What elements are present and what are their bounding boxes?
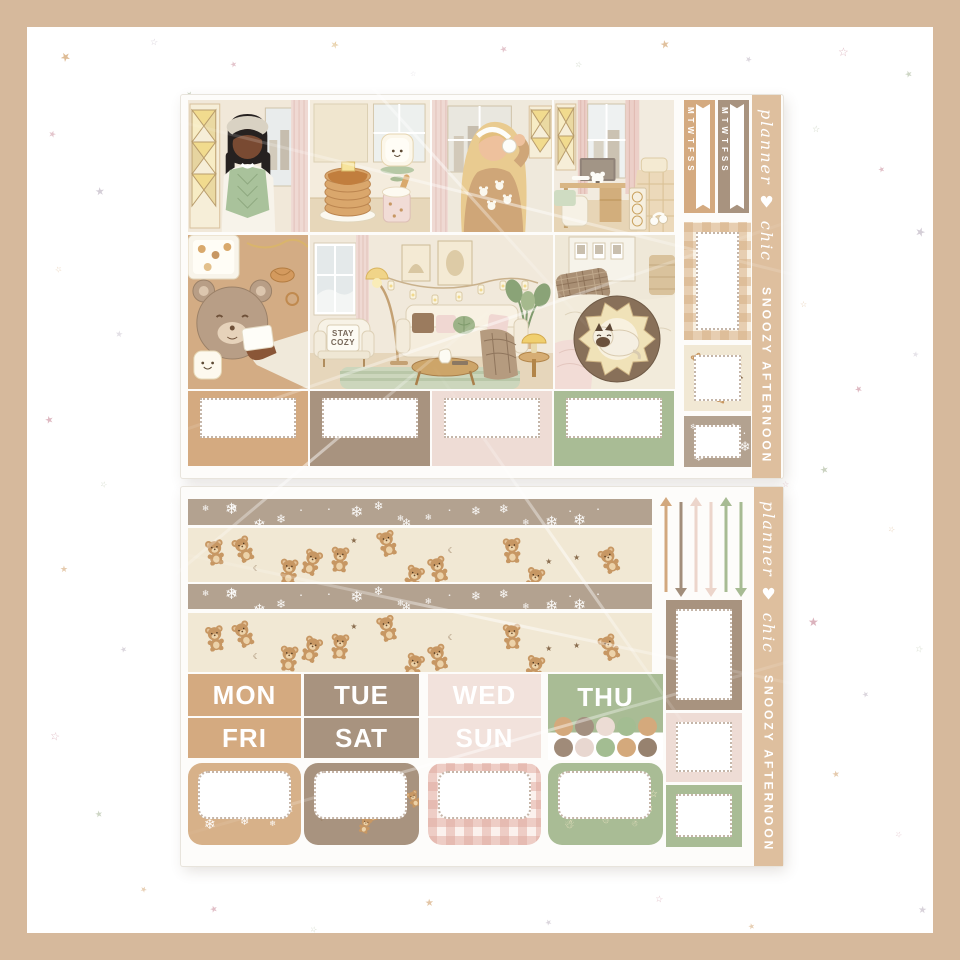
- star-confetti: ☆: [53, 264, 64, 275]
- star-confetti: ☆: [654, 894, 664, 905]
- dot-sticker-grid: [548, 714, 663, 760]
- write-in-area: [676, 609, 732, 700]
- arrow-sticker-down: [705, 497, 717, 597]
- kit-name-label: SNOOZY AFTERNOON: [762, 675, 776, 852]
- star-confetti: ★: [57, 48, 73, 66]
- star-confetti: ☆: [782, 480, 789, 489]
- snowflake-pattern-glyph: ❄: [401, 600, 411, 609]
- star-confetti: ★: [44, 414, 56, 427]
- star-confetti: ★: [138, 884, 148, 895]
- star-confetti: ★: [94, 185, 105, 199]
- arrow-sticker-up: [690, 497, 702, 597]
- star-confetti: ★: [114, 329, 123, 340]
- teddy-bear-pattern: [275, 642, 303, 672]
- write-in-area: [322, 398, 418, 438]
- teddy-bear-pattern: [398, 647, 431, 672]
- snowflake-pattern-glyph: ❄: [425, 596, 432, 606]
- tiny-star-moon-glyph: ★: [350, 536, 357, 545]
- star-confetti: ★: [911, 349, 919, 359]
- brand-script-logo: planner ♥ chic: [757, 109, 776, 262]
- star-confetti: ★: [743, 54, 753, 65]
- star-confetti: ★: [853, 384, 865, 397]
- quarter-label-sticker: [310, 391, 430, 466]
- snowflake-pattern-glyph: ❄: [573, 511, 586, 525]
- star-confetti: ★: [118, 644, 128, 655]
- teddy-bear-pattern: [225, 530, 260, 566]
- full-box-sticker: [666, 713, 742, 782]
- washi-strip-sticker: ❄❄❄•❄❄❄•❄❄❄•❄❄❄•❄❄❄•: [188, 584, 652, 609]
- teddy-bear-pattern: [275, 554, 303, 582]
- teddy-bear-pattern: [295, 544, 329, 579]
- stay-cozy-pillow-text-line1: STAY: [332, 329, 354, 338]
- snow-label-sticker: ❄❄❄•❄❄❄•❄❄❄•: [188, 763, 301, 845]
- snowflake-pattern-glyph: •: [743, 432, 746, 437]
- flag-ribbon: [730, 104, 744, 209]
- star-confetti: ★: [328, 39, 340, 52]
- snowflake-pattern-glyph: ❄: [471, 589, 481, 603]
- arrow-sticker-up: [660, 497, 672, 597]
- dot-sticker: [575, 717, 594, 736]
- sheet1-brand-strip: planner ♥ chic SNOOZY AFTERNOON: [752, 95, 781, 478]
- tiny-star-moon-glyph: ☾: [253, 652, 260, 661]
- snowflake-pattern-glyph: •: [327, 507, 330, 513]
- weekday-letters: MTWTFSS: [720, 107, 729, 175]
- illustration-bedroom-desk: [554, 100, 674, 232]
- star-confetti: ★: [209, 904, 220, 916]
- snowflake-pattern-glyph: ❄: [225, 585, 238, 603]
- write-in-area: [198, 771, 291, 819]
- sticker-sheet-2: ❄❄❄•❄❄❄•❄❄❄•❄❄❄•❄❄❄•★☾★☾★❄❄❄•❄❄❄•❄❄❄•❄❄❄…: [181, 487, 783, 866]
- snowflake-pattern-glyph: ❄: [276, 597, 286, 609]
- quarter-label-sticker: [554, 391, 674, 466]
- quarter-label-sticker: [188, 391, 308, 466]
- brand-script-logo: planner ♥ chic: [759, 501, 778, 654]
- star-confetti: ☆: [838, 45, 849, 60]
- star-confetti: ☆: [149, 38, 158, 49]
- teddy-bear-pattern: [200, 535, 230, 567]
- teddy-bear-pattern: [519, 651, 550, 672]
- snowflake-pattern-glyph: ❄: [276, 512, 286, 525]
- day-header-wed: WED: [428, 674, 541, 716]
- dot-sticker: [554, 738, 573, 757]
- week-flag-sticker: MTWTFSS: [684, 100, 715, 213]
- snowflake-pattern-glyph: ❄: [204, 817, 216, 833]
- teddy-bear-pattern: [421, 639, 454, 672]
- teddy-bear-pattern: [326, 543, 354, 573]
- quarter-label-sticker: [432, 391, 552, 466]
- dot-sticker: [596, 738, 615, 757]
- day-header-fri: FRI: [188, 718, 301, 758]
- dot-sticker: [554, 717, 573, 736]
- write-in-area: [444, 398, 540, 438]
- snowflake-pattern-glyph: •: [568, 509, 571, 515]
- teddy-bear-pattern: [370, 613, 403, 644]
- tiny-star-moon-glyph: ☾: [448, 633, 455, 642]
- star-confetti: ★: [831, 769, 841, 780]
- snowflake-pattern-glyph: ❄: [545, 513, 558, 525]
- write-in-area: [314, 771, 407, 819]
- teddy-bear-pattern: [200, 621, 230, 653]
- write-in-area: [558, 771, 651, 819]
- dot-sticker: [575, 738, 594, 757]
- snowflake-pattern-glyph: ❄: [397, 513, 404, 523]
- washi-strip-sticker: ★☾★☾★: [188, 528, 652, 582]
- snowflake-pattern-glyph: •: [327, 592, 330, 598]
- star-confetti: ☆: [812, 125, 821, 136]
- star-confetti: ★: [425, 898, 435, 910]
- tiny-star-moon-glyph: ★: [545, 644, 552, 653]
- star-confetti: ☆: [914, 644, 924, 656]
- teddy-bear-pattern: [498, 620, 525, 649]
- star-confetti: ☆: [309, 924, 319, 935]
- snowflake-pattern-glyph: ❄: [253, 516, 266, 525]
- dot-sticker: [617, 717, 636, 736]
- star-confetti: ★: [808, 615, 819, 629]
- write-in-area: [694, 425, 741, 458]
- snowflake-pattern-glyph: ❄: [230, 587, 237, 597]
- snowflake-pattern-glyph: ❄: [350, 503, 363, 521]
- snow-box-sticker: ❄❄❄•❄❄❄•❄: [684, 416, 751, 467]
- star-confetti: ★: [913, 224, 928, 241]
- bears-box-sticker: ★☾: [684, 345, 751, 411]
- teddy-bear-pattern: [295, 631, 329, 666]
- snowflake-pattern-glyph: ❄: [425, 512, 432, 522]
- washi-strip-sticker: ★☾★☾★: [188, 613, 652, 672]
- gingham-box-sticker: [684, 222, 751, 340]
- illustration-bear-cookie-flatlay: [188, 235, 308, 389]
- illustration-girl-bear-sweater: [432, 100, 552, 232]
- day-header-mon: MON: [188, 674, 301, 716]
- teddy-bear-pattern: [225, 615, 260, 651]
- snowflake-pattern-glyph: ❄: [401, 516, 411, 525]
- illustration-cozy-living-room: STAY COZY: [310, 235, 553, 389]
- snowflake-pattern-glyph: ❄: [499, 587, 509, 601]
- star-confetti: ☆: [49, 729, 62, 744]
- teddy-bear-pattern: [592, 541, 627, 577]
- illustration-girl-green-vest: [188, 100, 308, 232]
- star-confetti: ★: [94, 809, 104, 820]
- illustration-pancakes-and-toast: [310, 100, 430, 232]
- dot-sticker: [596, 717, 615, 736]
- star-confetti: ☆: [99, 479, 109, 490]
- star-confetti: ★: [904, 69, 915, 81]
- tiny-star-moon-glyph: ★: [545, 557, 552, 566]
- write-in-area: [676, 794, 732, 837]
- dot-sticker: [617, 738, 636, 757]
- snowflake-pattern-glyph: •: [596, 507, 599, 513]
- teddy-bear-pattern: [326, 630, 354, 660]
- day-header-sat: SAT: [304, 718, 419, 758]
- teddy-bear-pattern: [519, 562, 550, 582]
- snowflake-pattern-glyph: ❄: [499, 502, 509, 516]
- snowflake-pattern-glyph: ❄: [545, 597, 558, 609]
- star-confetti: ★: [747, 921, 756, 931]
- snowflake-pattern-glyph: •: [299, 593, 302, 599]
- star-confetti: ★: [543, 917, 553, 928]
- kit-name-label: SNOOZY AFTERNOON: [760, 287, 774, 464]
- snowflake-pattern-glyph: ❄: [269, 819, 276, 828]
- star-confetti: ★: [229, 59, 238, 70]
- full-box-sticker: [666, 600, 742, 710]
- day-header-tue: TUE: [304, 674, 419, 716]
- snowflake-pattern-glyph: ❄: [202, 503, 209, 513]
- teddy-bear-pattern: [370, 528, 403, 559]
- snowflake-pattern-glyph: •: [448, 593, 451, 599]
- illustration-cat-in-bear-bed: [555, 235, 675, 389]
- star-confetti: ☆: [800, 300, 808, 310]
- star-confetti: ☆: [893, 829, 904, 840]
- flag-ribbon: [696, 104, 710, 209]
- star-confetti: ★: [60, 565, 68, 575]
- week-flag-sticker: MTWTFSS: [718, 100, 749, 213]
- snowflake-pattern-glyph: •: [299, 508, 302, 514]
- tiny-star-moon-glyph: ★: [573, 553, 580, 562]
- star-confetti: ☆: [574, 59, 583, 69]
- write-in-area: [200, 398, 296, 438]
- gingham-label-sticker: [428, 763, 541, 845]
- snowflake-pattern-glyph: ❄: [202, 588, 209, 598]
- snowflake-pattern-glyph: ❄: [573, 596, 586, 609]
- snowflake-pattern-glyph: ❄: [471, 504, 481, 518]
- teddy-bear-pattern: [398, 559, 431, 582]
- tiny-star-moon-glyph: ★: [350, 622, 357, 631]
- snowflake-pattern-glyph: ❄: [230, 502, 237, 512]
- sticker-sheet-1: STAY COZY: [181, 95, 783, 478]
- write-in-area: [696, 232, 739, 330]
- write-in-area: [438, 771, 531, 819]
- teddy-bear-pattern: [421, 551, 454, 582]
- snowflake-pattern-glyph: •: [596, 592, 599, 598]
- snowflake-pattern-glyph: •: [448, 508, 451, 514]
- sheet2-brand-strip: planner ♥ chic SNOOZY AFTERNOON: [754, 487, 783, 866]
- doodles-label-sticker: ♡☃❄☆♡☃❄☆♡☃❄☆: [548, 763, 663, 845]
- doodle-pattern-glyph: ☃: [630, 818, 640, 829]
- arrow-sticker-down: [735, 497, 747, 597]
- snowflake-pattern-glyph: •: [568, 594, 571, 600]
- star-confetti: ★: [861, 689, 871, 700]
- snowflake-pattern-glyph: ❄: [522, 517, 529, 525]
- stay-cozy-pillow-text-line2: COZY: [331, 338, 355, 347]
- tiny-star-moon-glyph: ☾: [253, 564, 260, 573]
- snowflake-pattern-glyph: ❄: [225, 500, 238, 518]
- full-box-sticker: [666, 785, 742, 847]
- write-in-area: [566, 398, 662, 438]
- snowflake-pattern-glyph: ❄: [374, 584, 384, 598]
- snowflake-pattern-glyph: ❄: [350, 588, 363, 606]
- star-confetti: ★: [877, 164, 887, 175]
- teddy-bear-pattern: [498, 534, 525, 563]
- write-in-area: [694, 355, 741, 401]
- arrow-sticker-up: [720, 497, 732, 597]
- bears-label-sticker: ★☾: [304, 763, 419, 845]
- snowflake-pattern-glyph: ❄: [374, 499, 384, 513]
- product-photo: STAY COZY: [0, 0, 960, 960]
- dot-sticker: [638, 738, 657, 757]
- washi-strip-sticker: ❄❄❄•❄❄❄•❄❄❄•❄❄❄•❄❄❄•: [188, 499, 652, 525]
- teddy-bear-pattern: [592, 628, 627, 664]
- snowflake-pattern-glyph: ❄: [253, 601, 266, 610]
- weekday-letters: MTWTFSS: [686, 107, 695, 175]
- snowflake-pattern-glyph: ❄: [740, 440, 751, 455]
- star-confetti: ★: [918, 905, 928, 917]
- star-confetti: ☆: [410, 70, 417, 78]
- day-header-sun: SUN: [428, 718, 541, 758]
- snowflake-pattern-glyph: ❄: [397, 598, 404, 608]
- star-confetti: ☆: [887, 524, 897, 535]
- star-confetti: ★: [47, 129, 58, 141]
- star-confetti: ★: [819, 464, 830, 477]
- star-confetti: ★: [659, 37, 671, 52]
- write-in-area: [676, 722, 732, 772]
- star-confetti: ★: [498, 44, 510, 56]
- dot-sticker: [638, 717, 657, 736]
- tiny-star-moon-glyph: ★: [573, 641, 580, 650]
- arrow-sticker-down: [675, 497, 687, 597]
- tiny-star-moon-glyph: ☾: [448, 546, 455, 555]
- snowflake-pattern-glyph: ❄: [522, 601, 529, 609]
